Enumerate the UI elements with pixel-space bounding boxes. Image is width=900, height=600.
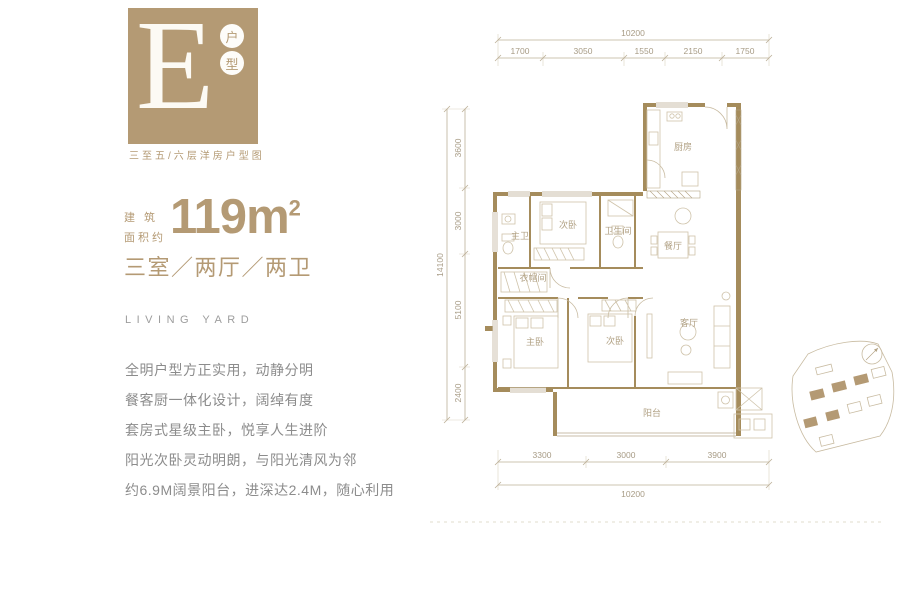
room-label-cloakroom: 衣帽间	[519, 272, 546, 283]
dim-bottom-seg1: 3000	[617, 450, 636, 460]
compass-icon	[862, 344, 882, 364]
dim-left-seg1: 3000	[453, 211, 463, 230]
dim-top-seg1: 3050	[574, 46, 593, 56]
area-prefix-line1: 建 筑	[124, 209, 166, 225]
dim-left-seg2: 5100	[453, 300, 463, 319]
room-labels: 厨房 次卧 主卫 卫生间 餐厅 衣帽间 主卧 次卧 客厅 阳台	[511, 141, 698, 418]
area-value: 119m2	[170, 194, 300, 241]
dim-bottom-total: 10200	[621, 489, 645, 499]
room-label-living: 客厅	[680, 317, 698, 328]
feature-item: 套房式星级主卧，悦享人生进阶	[125, 420, 394, 450]
dim-bottom-seg0: 3300	[533, 450, 552, 460]
site-minimap	[792, 341, 894, 452]
feature-item: 全明户型方正实用，动静分明	[125, 360, 394, 390]
area-prefix: 建 筑 面积约	[124, 209, 166, 245]
dim-left-total: 14100	[435, 253, 445, 277]
room-configuration: 三室／两厅／两卫	[124, 250, 312, 282]
floor-plan: 10200 1700 3050 1550 2150 1750 14100 360…	[430, 20, 900, 530]
room-label-balcony: 阳台	[643, 407, 661, 418]
unit-letter: E	[136, 0, 214, 139]
room-label-bedroom-top: 次卧	[559, 219, 577, 230]
dim-top-seg4: 1750	[736, 46, 755, 56]
dim-top-total: 10200	[621, 28, 645, 38]
room-label-master-bedroom: 主卧	[526, 336, 544, 347]
area-prefix-line2: 面积约	[124, 229, 166, 245]
area-number: 119	[170, 190, 246, 244]
room-label-bedroom-bottom: 次卧	[606, 335, 624, 346]
type-char-circle: 型	[220, 51, 244, 75]
area-summary: 建 筑 面积约 119m2	[124, 194, 300, 245]
feature-item: 餐客厨一体化设计，阔绰有度	[125, 390, 394, 420]
unit-type-badge: E 户 型	[128, 8, 258, 144]
room-label-master-bath: 主卫	[511, 230, 529, 241]
unit-type-circles: 户 型	[220, 24, 244, 75]
page: E 户 型 三至五/六层洋房户型图 建 筑 面积约 119m2 三室／两厅／两卫…	[0, 0, 900, 600]
dim-top-seg0: 1700	[511, 46, 530, 56]
unit-subtitle: 三至五/六层洋房户型图	[129, 147, 265, 162]
type-char-circle: 户	[220, 24, 244, 48]
dim-left-seg0: 3600	[453, 138, 463, 157]
dim-bottom-seg2: 3900	[708, 450, 727, 460]
room-label-kitchen: 厨房	[674, 141, 692, 152]
feature-item: 阳光次卧灵动明朗，与阳光清风为邻	[125, 450, 394, 480]
room-label-dining: 餐厅	[664, 240, 682, 251]
feature-list: 全明户型方正实用，动静分明 餐客厨一体化设计，阔绰有度 套房式星级主卧，悦享人生…	[125, 360, 394, 510]
dim-left-seg3: 2400	[453, 383, 463, 402]
english-tagline: LIVING YARD	[125, 314, 254, 326]
dimension-top: 10200 1700 3050 1550 2150 1750	[495, 28, 772, 66]
dimension-bottom: 3300 3000 3900 10200	[495, 450, 772, 499]
room-label-bath: 卫生间	[604, 225, 631, 236]
dim-top-seg3: 2150	[684, 46, 703, 56]
area-unit: m	[246, 190, 289, 244]
door-arcs	[550, 107, 727, 318]
area-superscript: 2	[289, 196, 300, 221]
minimap-buildings	[803, 364, 886, 446]
dim-top-seg2: 1550	[635, 46, 654, 56]
windows	[493, 103, 737, 437]
feature-item: 约6.9M阔景阳台，进深达2.4M，随心利用	[125, 480, 394, 510]
dimension-left: 14100 3600 3000 5100 2400	[435, 106, 470, 423]
walls	[485, 103, 741, 436]
